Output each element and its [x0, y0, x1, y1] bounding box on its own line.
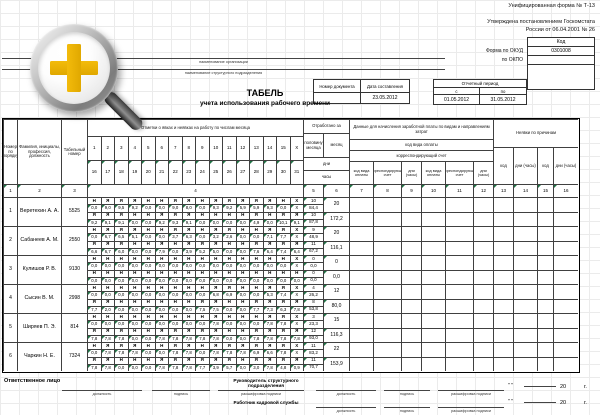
mark-cell[interactable]: Н	[168, 241, 182, 248]
hours-cell[interactable]: 9,1	[114, 219, 128, 226]
row-number[interactable]: 3	[3, 255, 17, 284]
hours-cell[interactable]: 0,0	[128, 219, 142, 226]
hours-cell[interactable]: 3,9	[209, 364, 223, 371]
mark-cell[interactable]: Н	[101, 255, 115, 262]
mark-cell[interactable]: Н	[236, 226, 250, 233]
responsible-signature-line[interactable]	[152, 383, 210, 391]
pay-cell[interactable]	[445, 299, 473, 314]
hours-cell[interactable]: 7,8	[263, 364, 277, 371]
hours-cell[interactable]: 7,8	[155, 335, 169, 342]
mark-cell[interactable]: Я	[101, 226, 115, 233]
mark-cell[interactable]: Н	[236, 357, 250, 364]
pay-cell[interactable]	[473, 197, 493, 212]
hours-cell[interactable]: 0,0	[195, 204, 209, 211]
mark-cell[interactable]: Н	[114, 357, 128, 364]
hours-cell[interactable]: 7,8	[249, 335, 263, 342]
hours-cell[interactable]: 0,0	[155, 320, 169, 327]
pay-cell[interactable]	[445, 255, 473, 270]
mark-cell[interactable]: Н	[195, 197, 209, 204]
mark-cell[interactable]: Н	[128, 313, 142, 320]
absence-cell[interactable]	[493, 241, 513, 256]
pay-cell[interactable]	[473, 226, 493, 241]
mark-cell[interactable]: Я	[276, 212, 290, 219]
half-hours[interactable]: 0,0	[303, 262, 323, 269]
pay-cell[interactable]	[445, 284, 473, 299]
pay-cell[interactable]	[421, 241, 445, 256]
hours-cell[interactable]: 0,0	[236, 291, 250, 298]
hours-cell[interactable]: 0,0	[195, 233, 209, 240]
mark-cell[interactable]: Я	[276, 226, 290, 233]
mark-cell[interactable]: Я	[182, 328, 196, 335]
hours-cell[interactable]: 0,0	[87, 291, 101, 298]
hours-cell[interactable]: 7,8	[276, 349, 290, 356]
pay-cell[interactable]	[349, 342, 373, 357]
hours-cell[interactable]: 0,0	[195, 219, 209, 226]
mark-cell[interactable]: Н	[155, 197, 169, 204]
mark-cell[interactable]: Я	[222, 226, 236, 233]
mark-cell[interactable]: Я	[263, 226, 277, 233]
hours-cell[interactable]: 0,0	[236, 335, 250, 342]
hours-cell[interactable]: 0,0	[155, 233, 169, 240]
hours-cell[interactable]: 0,0	[114, 277, 128, 284]
mark-cell[interactable]: Н	[209, 255, 223, 262]
hours-cell[interactable]: 0,0	[195, 277, 209, 284]
absence-cell[interactable]	[553, 328, 578, 343]
hours-cell[interactable]: 9,2	[128, 204, 142, 211]
hours-cell[interactable]: 3,0	[249, 364, 263, 371]
hours-cell[interactable]: 0,0	[182, 320, 196, 327]
month-days[interactable]: 22	[323, 342, 349, 357]
mark-cell[interactable]: Я	[263, 241, 277, 248]
pay-cell[interactable]	[401, 328, 421, 343]
hours-cell[interactable]: 9,3	[263, 204, 277, 211]
hours-cell[interactable]: 0,0	[155, 306, 169, 313]
hours-cell[interactable]: 9,1	[182, 219, 196, 226]
mark-cell[interactable]: Я	[236, 197, 250, 204]
mark-cell[interactable]: Я	[128, 197, 142, 204]
hours-cell[interactable]: 7,7	[249, 306, 263, 313]
mark-cell[interactable]: Н	[155, 270, 169, 277]
mark-cell[interactable]: Н	[236, 212, 250, 219]
hours-cell[interactable]: 0,0	[141, 262, 155, 269]
pay-cell[interactable]	[421, 255, 445, 270]
head-date-line[interactable]	[524, 379, 556, 387]
half-hours[interactable]: 84,4	[303, 204, 323, 211]
half-days[interactable]: 3	[303, 313, 323, 320]
hours-cell[interactable]: 0,0	[236, 233, 250, 240]
mark-cell[interactable]: Н	[141, 212, 155, 219]
pay-cell[interactable]	[473, 313, 493, 328]
mark-cell[interactable]: Н	[222, 212, 236, 219]
hours-cell[interactable]: 0,0	[128, 248, 142, 255]
mark-cell[interactable]: Я	[101, 212, 115, 219]
hours-cell[interactable]: 0,0	[128, 306, 142, 313]
period-to-value[interactable]: 31.05.2012	[479, 94, 527, 105]
hours-cell[interactable]: 0,0	[141, 364, 155, 371]
hours-cell[interactable]: 0,0	[87, 233, 101, 240]
mark-cell[interactable]: Я	[182, 212, 196, 219]
hours-cell[interactable]: 0,0	[236, 248, 250, 255]
mark-cell[interactable]: Я	[249, 197, 263, 204]
hours-cell[interactable]: 9,2	[222, 204, 236, 211]
mark-cell[interactable]: Н	[195, 313, 209, 320]
hours-cell[interactable]: 0,0	[222, 248, 236, 255]
mark-cell[interactable]: Н	[128, 299, 142, 306]
mark-cell[interactable]: Я	[101, 328, 115, 335]
pay-cell[interactable]	[349, 284, 373, 299]
hr-date-line[interactable]	[524, 395, 556, 403]
pay-cell[interactable]	[445, 357, 473, 372]
hours-cell[interactable]: 6,0	[114, 248, 128, 255]
pay-cell[interactable]	[421, 284, 445, 299]
hours-cell[interactable]: 0,0	[195, 291, 209, 298]
mark-cell[interactable]: Н	[236, 255, 250, 262]
mark-cell[interactable]: Я	[195, 241, 209, 248]
pay-cell[interactable]	[401, 284, 421, 299]
absence-cell[interactable]	[553, 357, 578, 372]
mark-cell[interactable]: Н	[141, 197, 155, 204]
hours-cell[interactable]: Х	[290, 204, 304, 211]
month-days[interactable]: 0	[323, 255, 349, 270]
mark-cell[interactable]: Н	[141, 226, 155, 233]
hours-cell[interactable]: 0,0	[222, 219, 236, 226]
pay-cell[interactable]	[373, 284, 401, 299]
pay-cell[interactable]	[349, 212, 373, 227]
hours-cell[interactable]: 7,8	[155, 364, 169, 371]
month-hours[interactable]: 172,2	[323, 212, 349, 227]
mark-cell[interactable]: Н	[249, 255, 263, 262]
hours-cell[interactable]: Х	[290, 233, 304, 240]
mark-cell[interactable]: Н	[128, 212, 142, 219]
period-from-value[interactable]: 01.05.2012	[433, 94, 480, 105]
half-days[interactable]: 8	[303, 299, 323, 306]
mark-cell[interactable]: Н	[87, 270, 101, 277]
hours-cell[interactable]: 6,7	[101, 248, 115, 255]
hours-cell[interactable]: 7,8	[276, 335, 290, 342]
mark-cell[interactable]: Я	[263, 197, 277, 204]
hours-cell[interactable]: 3,7	[168, 233, 182, 240]
pay-cell[interactable]	[473, 255, 493, 270]
absence-cell[interactable]	[537, 241, 553, 256]
mark-cell[interactable]: Н	[236, 270, 250, 277]
mark-cell[interactable]: Я	[168, 197, 182, 204]
hours-cell[interactable]: 7,8	[101, 349, 115, 356]
pay-cell[interactable]	[401, 357, 421, 372]
pay-cell[interactable]	[421, 357, 445, 372]
mark-cell[interactable]: Я	[290, 212, 304, 219]
hours-cell[interactable]: 7,8	[128, 349, 142, 356]
mark-cell[interactable]: Н	[155, 342, 169, 349]
mark-cell[interactable]: Я	[209, 197, 223, 204]
mark-cell[interactable]: Н	[128, 284, 142, 291]
hours-cell[interactable]: 9,1	[290, 219, 304, 226]
hours-cell[interactable]: 0,0	[141, 204, 155, 211]
mark-cell[interactable]: Я	[290, 357, 304, 364]
month-days[interactable]: 20	[323, 226, 349, 241]
absence-cell[interactable]	[513, 197, 537, 212]
row-number[interactable]: 2	[3, 226, 17, 255]
mark-cell[interactable]: Я	[276, 328, 290, 335]
hours-cell[interactable]: 0,0	[290, 277, 304, 284]
hours-cell[interactable]: 0,0	[168, 291, 182, 298]
mark-cell[interactable]: Я	[101, 299, 115, 306]
mark-cell[interactable]: Я	[155, 212, 169, 219]
hours-cell[interactable]: 0,0	[222, 306, 236, 313]
pay-cell[interactable]	[473, 328, 493, 343]
hours-cell[interactable]: 0,0	[141, 335, 155, 342]
absence-cell[interactable]	[553, 212, 578, 227]
hours-cell[interactable]: 0,0	[87, 277, 101, 284]
mark-cell[interactable]: Н	[236, 328, 250, 335]
hours-cell[interactable]: 7,8	[290, 306, 304, 313]
mark-cell[interactable]: Н	[209, 270, 223, 277]
mark-cell[interactable]: Я	[168, 342, 182, 349]
pay-cell[interactable]	[473, 284, 493, 299]
absence-cell[interactable]	[537, 284, 553, 299]
hours-cell[interactable]: 5,9	[249, 204, 263, 211]
mark-cell[interactable]: Я	[276, 357, 290, 364]
hours-cell[interactable]: 2,6	[222, 233, 236, 240]
hours-cell[interactable]: 4,8	[276, 364, 290, 371]
mark-cell[interactable]: Н	[114, 270, 128, 277]
hours-cell[interactable]: 0,0	[236, 320, 250, 327]
absence-cell[interactable]	[537, 357, 553, 372]
hours-cell[interactable]: 2,0	[101, 306, 115, 313]
mark-cell[interactable]: Я	[195, 357, 209, 364]
half-hours[interactable]: 83,2	[303, 349, 323, 356]
absence-cell[interactable]	[493, 212, 513, 227]
mark-cell[interactable]: Я	[87, 212, 101, 219]
half-hours[interactable]: 53,8	[303, 306, 323, 313]
hours-cell[interactable]: 7,8	[182, 349, 196, 356]
hours-cell[interactable]: 7,8	[101, 364, 115, 371]
half-hours[interactable]: 67,2	[303, 248, 323, 255]
hours-cell[interactable]: 0,0	[195, 320, 209, 327]
mark-cell[interactable]: Я	[276, 241, 290, 248]
mark-cell[interactable]: Н	[155, 284, 169, 291]
mark-cell[interactable]: Я	[209, 284, 223, 291]
hours-cell[interactable]: 7,8	[290, 335, 304, 342]
mark-cell[interactable]: Н	[141, 342, 155, 349]
mark-cell[interactable]: Н	[114, 299, 128, 306]
absence-cell[interactable]	[493, 226, 513, 241]
mark-cell[interactable]: Я	[222, 284, 236, 291]
month-hours[interactable]: 116,3	[323, 328, 349, 343]
mark-cell[interactable]: Я	[101, 197, 115, 204]
hours-cell[interactable]: 7,6	[249, 248, 263, 255]
mark-cell[interactable]: Н	[128, 270, 142, 277]
mark-cell[interactable]: Н	[87, 313, 101, 320]
mark-cell[interactable]: Я	[263, 299, 277, 306]
mark-cell[interactable]: Х	[290, 313, 304, 320]
mark-cell[interactable]: Я	[222, 342, 236, 349]
hours-cell[interactable]: 0,0	[141, 306, 155, 313]
absence-cell[interactable]	[537, 328, 553, 343]
mark-cell[interactable]: Н	[114, 284, 128, 291]
mark-cell[interactable]: Я	[249, 241, 263, 248]
hours-cell[interactable]: 0,0	[249, 320, 263, 327]
half-hours[interactable]: 87,8	[303, 219, 323, 226]
hours-cell[interactable]: 7,5	[195, 306, 209, 313]
absence-cell[interactable]	[513, 284, 537, 299]
mark-cell[interactable]: Н	[222, 328, 236, 335]
hours-cell[interactable]: 0,0	[249, 277, 263, 284]
pay-cell[interactable]	[473, 357, 493, 372]
hours-cell[interactable]: 6,6	[263, 349, 277, 356]
mark-cell[interactable]: Н	[249, 270, 263, 277]
hours-cell[interactable]: 6,3	[182, 233, 196, 240]
hours-cell[interactable]: 10,1	[276, 219, 290, 226]
mark-cell[interactable]: Я	[276, 284, 290, 291]
absence-cell[interactable]	[513, 212, 537, 227]
hours-cell[interactable]: 0,0	[263, 219, 277, 226]
pay-cell[interactable]	[401, 342, 421, 357]
month-hours[interactable]: 80,0	[323, 299, 349, 314]
pay-cell[interactable]	[421, 328, 445, 343]
hours-cell[interactable]: 7,8	[209, 335, 223, 342]
pay-cell[interactable]	[445, 226, 473, 241]
pay-cell[interactable]	[473, 299, 493, 314]
mark-cell[interactable]: Н	[249, 226, 263, 233]
mark-cell[interactable]: Я	[182, 197, 196, 204]
mark-cell[interactable]: Н	[87, 342, 101, 349]
personnel-number[interactable]: 814	[61, 313, 87, 342]
pay-cell[interactable]	[373, 226, 401, 241]
pay-cell[interactable]	[445, 212, 473, 227]
hours-cell[interactable]: 0,0	[209, 262, 223, 269]
month-days[interactable]: 20	[323, 197, 349, 212]
absence-cell[interactable]	[493, 328, 513, 343]
mark-cell[interactable]: Н	[168, 284, 182, 291]
mark-cell[interactable]: Я	[209, 226, 223, 233]
hours-cell[interactable]: 0,0	[155, 291, 169, 298]
absence-cell[interactable]	[493, 255, 513, 270]
hours-cell[interactable]: 7,8	[195, 335, 209, 342]
mark-cell[interactable]: Н	[276, 255, 290, 262]
mark-cell[interactable]: Н	[141, 241, 155, 248]
hours-cell[interactable]: 0,0	[155, 349, 169, 356]
hours-cell[interactable]: 7,8	[182, 364, 196, 371]
hours-cell[interactable]: 7,3	[263, 306, 277, 313]
hours-cell[interactable]: 3,2	[209, 233, 223, 240]
hours-cell[interactable]: 0,0	[168, 262, 182, 269]
absence-cell[interactable]	[513, 357, 537, 372]
mark-cell[interactable]: Я	[182, 357, 196, 364]
mark-cell[interactable]: Я	[168, 226, 182, 233]
hours-cell[interactable]: 0,0	[236, 262, 250, 269]
pay-cell[interactable]	[473, 212, 493, 227]
pay-cell[interactable]	[349, 226, 373, 241]
hours-cell[interactable]: 5,1	[128, 233, 142, 240]
mark-cell[interactable]: Я	[249, 212, 263, 219]
mark-cell[interactable]: Я	[209, 241, 223, 248]
half-days[interactable]: 11	[303, 357, 323, 364]
hours-cell[interactable]: 0,0	[141, 277, 155, 284]
hours-cell[interactable]: 7,7	[276, 233, 290, 240]
hours-cell[interactable]: 7,7	[195, 364, 209, 371]
personnel-number[interactable]: 9130	[61, 255, 87, 284]
absence-cell[interactable]	[537, 255, 553, 270]
mark-cell[interactable]: Я	[101, 342, 115, 349]
hours-cell[interactable]: Х	[290, 349, 304, 356]
mark-cell[interactable]: Н	[168, 299, 182, 306]
mark-cell[interactable]: Н	[87, 226, 101, 233]
mark-cell[interactable]: Н	[141, 328, 155, 335]
mark-cell[interactable]: Н	[87, 284, 101, 291]
mark-cell[interactable]: Я	[249, 328, 263, 335]
hours-cell[interactable]: 0,0	[114, 291, 128, 298]
hours-cell[interactable]: 3,9	[182, 248, 196, 255]
employee-name[interactable]: Веретехин А. А.	[17, 197, 61, 226]
mark-cell[interactable]: Я	[182, 342, 196, 349]
hours-cell[interactable]: 0,0	[222, 277, 236, 284]
month-hours[interactable]: 153,9	[323, 357, 349, 372]
hours-cell[interactable]: 0,0	[276, 204, 290, 211]
hours-cell[interactable]: 9,5	[114, 204, 128, 211]
pay-cell[interactable]	[473, 241, 493, 256]
hours-cell[interactable]: 7,8	[114, 349, 128, 356]
mark-cell[interactable]: Н	[195, 270, 209, 277]
mark-cell[interactable]: Н	[141, 255, 155, 262]
hours-cell[interactable]: 0,0	[87, 204, 101, 211]
pay-cell[interactable]	[373, 299, 401, 314]
hr-transcript-line[interactable]	[438, 400, 504, 408]
pay-cell[interactable]	[373, 197, 401, 212]
hours-cell[interactable]: 9,0	[168, 204, 182, 211]
pay-cell[interactable]	[349, 255, 373, 270]
absence-cell[interactable]	[493, 342, 513, 357]
hours-cell[interactable]: 5,3	[263, 291, 277, 298]
half-hours[interactable]: 48,9	[303, 233, 323, 240]
mark-cell[interactable]: Я	[276, 299, 290, 306]
mark-cell[interactable]: Я	[168, 328, 182, 335]
hours-cell[interactable]: 7,8	[101, 335, 115, 342]
mark-cell[interactable]: Н	[182, 270, 196, 277]
hours-cell[interactable]: 7,8	[87, 335, 101, 342]
hours-cell[interactable]: 0,0	[236, 219, 250, 226]
mark-cell[interactable]: Я	[276, 342, 290, 349]
mark-cell[interactable]: Н	[195, 226, 209, 233]
pay-cell[interactable]	[445, 197, 473, 212]
mark-cell[interactable]: Я	[87, 328, 101, 335]
hours-cell[interactable]: 7,7	[87, 306, 101, 313]
mark-cell[interactable]: Н	[276, 270, 290, 277]
hours-cell[interactable]: Х	[290, 320, 304, 327]
mark-cell[interactable]: Я	[276, 313, 290, 320]
hours-cell[interactable]: 0,0	[101, 291, 115, 298]
hours-cell[interactable]: 7,8	[263, 335, 277, 342]
mark-cell[interactable]: Н	[249, 313, 263, 320]
absence-cell[interactable]	[553, 226, 578, 241]
hours-cell[interactable]: 0,0	[182, 306, 196, 313]
pay-cell[interactable]	[373, 241, 401, 256]
mark-cell[interactable]: Я	[114, 241, 128, 248]
hours-cell[interactable]: 0,0	[128, 320, 142, 327]
mark-cell[interactable]: Я	[128, 342, 142, 349]
pay-cell[interactable]	[421, 313, 445, 328]
mark-cell[interactable]: Н	[128, 357, 142, 364]
hours-cell[interactable]: 7,9	[155, 248, 169, 255]
mark-cell[interactable]: Н	[236, 284, 250, 291]
pay-cell[interactable]	[349, 357, 373, 372]
absence-cell[interactable]	[537, 342, 553, 357]
hours-cell[interactable]: 0,0	[128, 364, 142, 371]
hours-cell[interactable]: 5,0	[209, 248, 223, 255]
mark-cell[interactable]: Н	[155, 255, 169, 262]
hours-cell[interactable]: 0,0	[141, 248, 155, 255]
hours-cell[interactable]: 0,0	[222, 320, 236, 327]
absence-cell[interactable]	[493, 357, 513, 372]
